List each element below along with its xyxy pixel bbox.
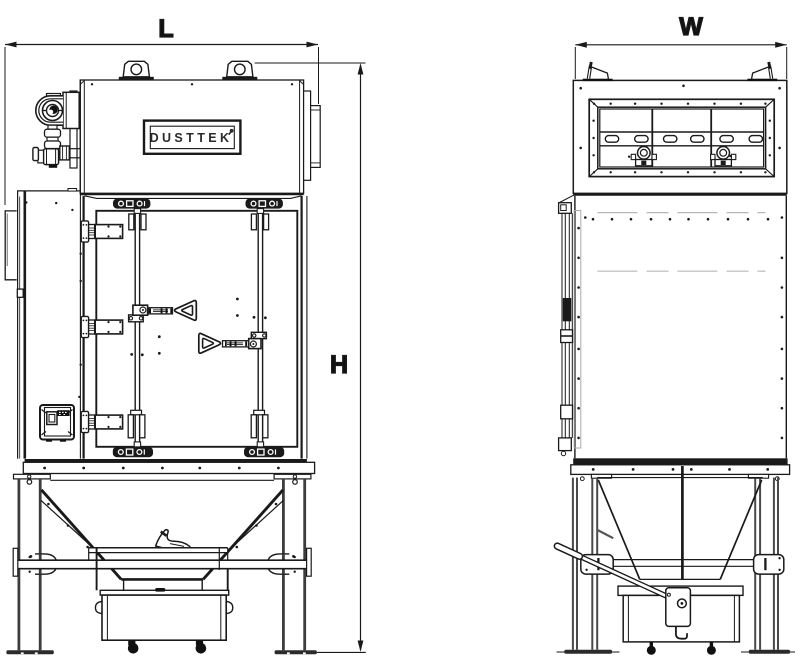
svg-text:W: W xyxy=(679,13,703,41)
svg-text:H: H xyxy=(330,351,348,379)
svg-text:DUSTTEK: DUSTTEK xyxy=(150,131,233,145)
svg-text:L: L xyxy=(158,15,173,43)
